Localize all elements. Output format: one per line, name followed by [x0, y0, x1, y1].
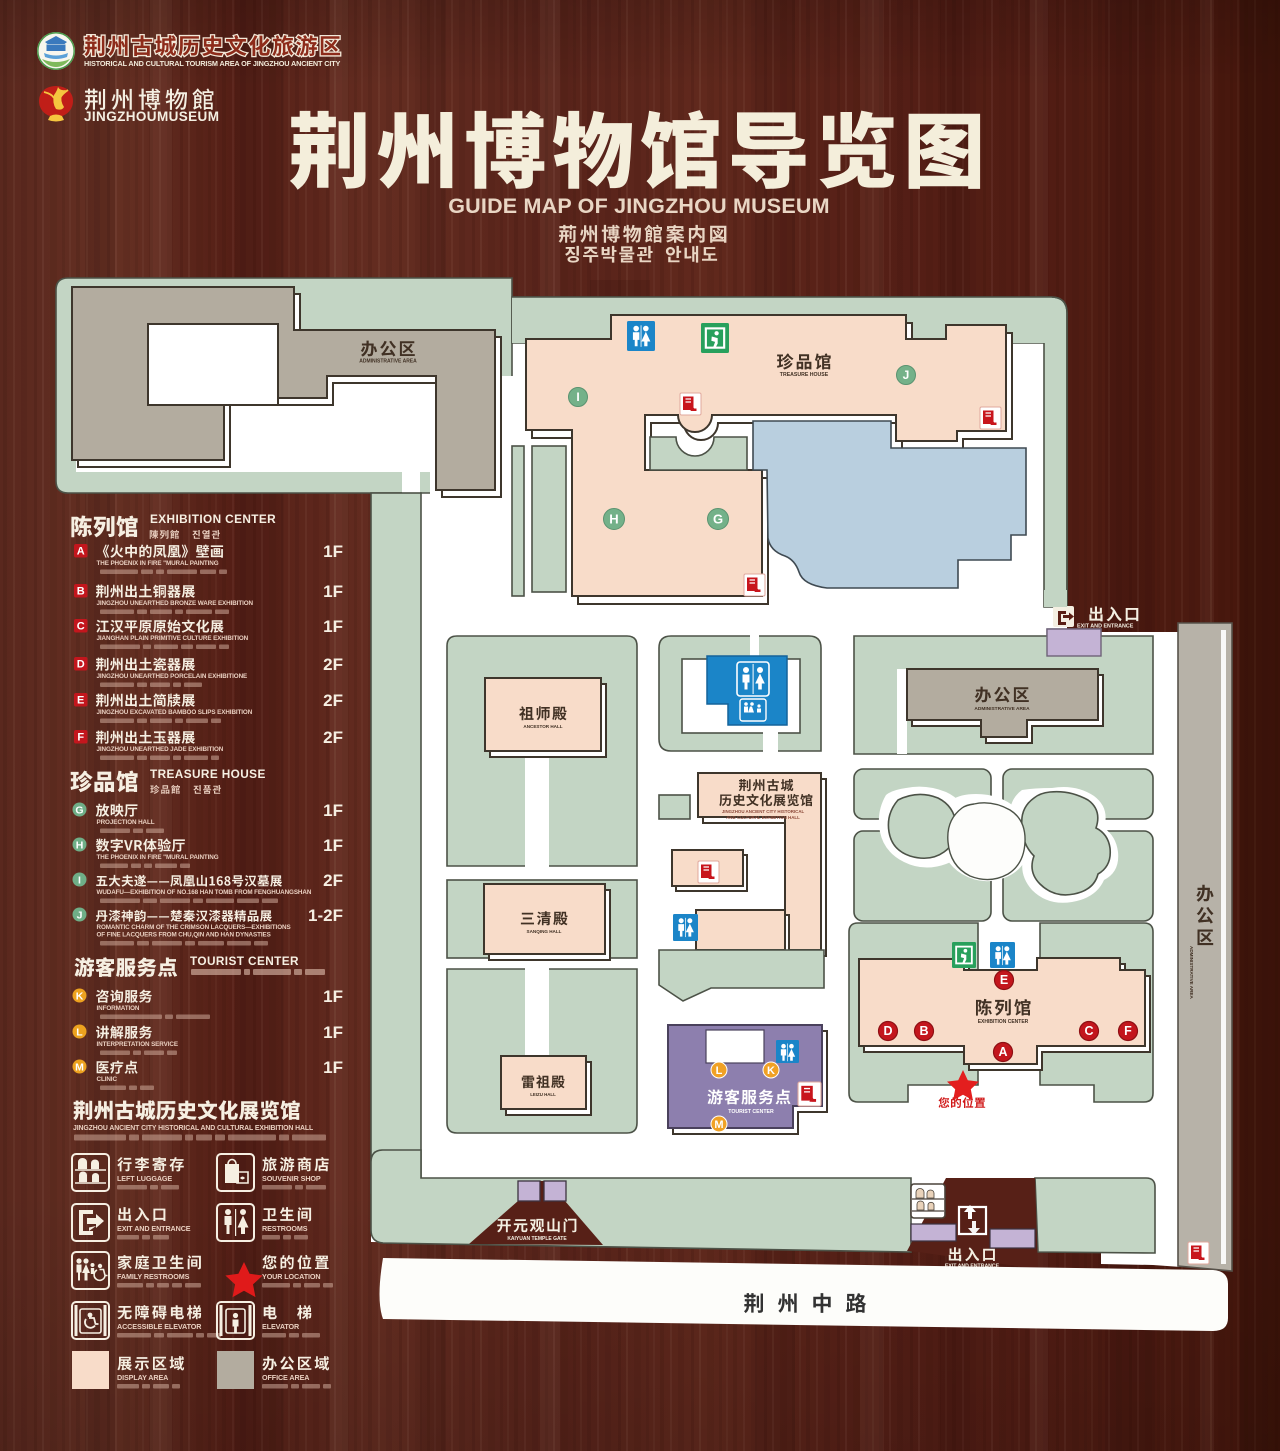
svg-text:M: M [75, 1061, 84, 1073]
svg-text:EXHIBITION CENTER: EXHIBITION CENTER [150, 512, 276, 526]
svg-text:2F: 2F [323, 691, 343, 710]
svg-text:1-2F: 1-2F [308, 906, 343, 925]
svg-text:PROJECTION HALL: PROJECTION HALL [97, 819, 155, 826]
svg-text:YOUR LOCATION: YOUR LOCATION [262, 1272, 320, 1281]
svg-text:WUDAFU—EXHIBITION OF NO.168 HA: WUDAFU—EXHIBITION OF NO.168 HAN TOMB FRO… [97, 889, 312, 896]
svg-text:L: L [716, 1065, 723, 1077]
svg-text:C: C [1084, 1024, 1093, 1038]
svg-text:EXIT AND ENTRANCE: EXIT AND ENTRANCE [117, 1224, 191, 1233]
svg-text:ANCESTOR HALL: ANCESTOR HALL [523, 724, 562, 729]
svg-text:INTERPRETATION SERVICE: INTERPRETATION SERVICE [97, 1041, 178, 1048]
svg-text:GUIDE MAP OF JINGZHOU MUSEUM: GUIDE MAP OF JINGZHOU MUSEUM [448, 194, 829, 218]
svg-text:1F: 1F [323, 582, 343, 601]
svg-text:JINGZHOU UNEARTHED BRONZE WARE: JINGZHOU UNEARTHED BRONZE WARE EXHIBITIO… [97, 600, 254, 607]
svg-text:1F: 1F [323, 801, 343, 820]
svg-text:G: G [75, 804, 83, 816]
svg-text:1F: 1F [323, 542, 343, 561]
svg-text:2F: 2F [323, 871, 343, 890]
svg-text:JINGZHOUMUSEUM: JINGZHOUMUSEUM [84, 109, 219, 124]
svg-text:LEIZU HALL: LEIZU HALL [530, 1092, 556, 1097]
svg-text:K: K [767, 1065, 775, 1077]
svg-text:A: A [77, 546, 85, 558]
svg-text:F: F [1124, 1024, 1132, 1038]
svg-text:1F: 1F [323, 836, 343, 855]
svg-text:TOURIST CENTER: TOURIST CENTER [190, 954, 299, 968]
svg-text:2F: 2F [323, 655, 343, 674]
svg-text:J: J [903, 368, 910, 382]
svg-text:EXHIBITION CENTER: EXHIBITION CENTER [978, 1019, 1029, 1025]
svg-text:ADMINISTRATIVE AREA: ADMINISTRATIVE AREA [1189, 946, 1194, 1000]
svg-text:ADMINISTRATIVE AREA: ADMINISTRATIVE AREA [359, 359, 417, 365]
svg-text:ROMANTIC CHARM OF THE CRIMSON: ROMANTIC CHARM OF THE CRIMSON LACQUERS—E… [97, 924, 291, 931]
svg-text:ADMINISTRATIVE AREA: ADMINISTRATIVE AREA [974, 706, 1030, 712]
svg-text:1F: 1F [323, 1058, 343, 1077]
svg-text:D: D [883, 1024, 892, 1038]
svg-text:1F: 1F [323, 987, 343, 1006]
svg-text:JINGZHOU ANCIENT CITY HISTORIC: JINGZHOU ANCIENT CITY HISTORICAL [722, 809, 805, 814]
svg-text:L: L [76, 1026, 83, 1038]
svg-text:G: G [713, 512, 723, 527]
svg-text:TOURIST CENTER: TOURIST CENTER [728, 1109, 774, 1115]
svg-text:B: B [919, 1024, 928, 1038]
svg-text:TREASURE HOUSE: TREASURE HOUSE [150, 767, 266, 781]
svg-text:AND CULTURAL EXHIBITION HALL: AND CULTURAL EXHIBITION HALL [726, 815, 800, 820]
svg-text:TREASURE HOUSE: TREASURE HOUSE [780, 372, 829, 378]
svg-text:F: F [77, 732, 84, 744]
svg-text:M: M [714, 1119, 723, 1131]
svg-text:2F: 2F [323, 728, 343, 747]
svg-text:C: C [77, 621, 85, 633]
svg-text:THE PHOENIX IN FIRE "MURAL PAI: THE PHOENIX IN FIRE "MURAL PAINTING [97, 560, 219, 567]
svg-text:E: E [1000, 973, 1008, 987]
svg-text:H: H [609, 512, 618, 527]
svg-text:OFFICE AREA: OFFICE AREA [262, 1373, 309, 1382]
svg-text:ACCESSIBLE ELEVATOR: ACCESSIBLE ELEVATOR [117, 1322, 202, 1331]
svg-text:1F: 1F [323, 1023, 343, 1042]
svg-text:LEFT LUGGAGE: LEFT LUGGAGE [117, 1174, 172, 1183]
svg-text:I: I [576, 390, 579, 404]
svg-text:D: D [77, 659, 85, 671]
svg-text:KAIYUAN TEMPLE GATE: KAIYUAN TEMPLE GATE [507, 1236, 567, 1242]
svg-text:I: I [78, 874, 81, 886]
svg-text:JINGZHOU EXCAVATED BAMBOO SLIP: JINGZHOU EXCAVATED BAMBOO SLIPS EXHIBITI… [97, 709, 253, 716]
svg-text:INFORMATION: INFORMATION [97, 1005, 140, 1012]
svg-text:JINGZHOU ANCIENT CITY HISTORIC: JINGZHOU ANCIENT CITY HISTORICAL AND CUL… [73, 1125, 313, 1132]
svg-text:K: K [76, 990, 84, 1002]
svg-text:ELEVATOR: ELEVATOR [262, 1322, 300, 1331]
svg-text:E: E [77, 695, 84, 707]
svg-text:1F: 1F [323, 617, 343, 636]
svg-text:H: H [76, 839, 84, 851]
svg-text:B: B [77, 586, 85, 598]
svg-text:FAMILY RESTROOMS: FAMILY RESTROOMS [117, 1272, 190, 1281]
svg-text:THE PHOENIX IN FIRE "MURAL PAI: THE PHOENIX IN FIRE "MURAL PAINTING [97, 854, 219, 861]
svg-text:SANQING HALL: SANQING HALL [527, 929, 562, 934]
svg-text:OF FINE LACQUERS FROM CHU,QIN: OF FINE LACQUERS FROM CHU,QIN AND HAN DY… [97, 932, 271, 939]
svg-text:DISPLAY AREA: DISPLAY AREA [117, 1373, 168, 1382]
svg-text:HISTORICAL AND CULTURAL TOURIS: HISTORICAL AND CULTURAL TOURISM AREA OF … [84, 59, 341, 68]
svg-text:JINGZHOU UNEARTHED PORCELAIN E: JINGZHOU UNEARTHED PORCELAIN EXHIBITIONE [97, 673, 248, 680]
svg-text:SOUVENIR SHOP: SOUVENIR SHOP [262, 1174, 321, 1183]
svg-text:RESTROOMS: RESTROOMS [262, 1224, 308, 1233]
svg-text:CLINIC: CLINIC [97, 1076, 118, 1083]
svg-text:J: J [77, 909, 83, 921]
svg-text:A: A [998, 1045, 1007, 1059]
svg-text:JINGZHOU UNEARTHED JADE EXHIBI: JINGZHOU UNEARTHED JADE EXHIBITION [97, 746, 224, 753]
svg-text:JIANGHAN PLAIN PRIMITIVE CULTU: JIANGHAN PLAIN PRIMITIVE CULTURE EXHIBIT… [97, 635, 249, 642]
